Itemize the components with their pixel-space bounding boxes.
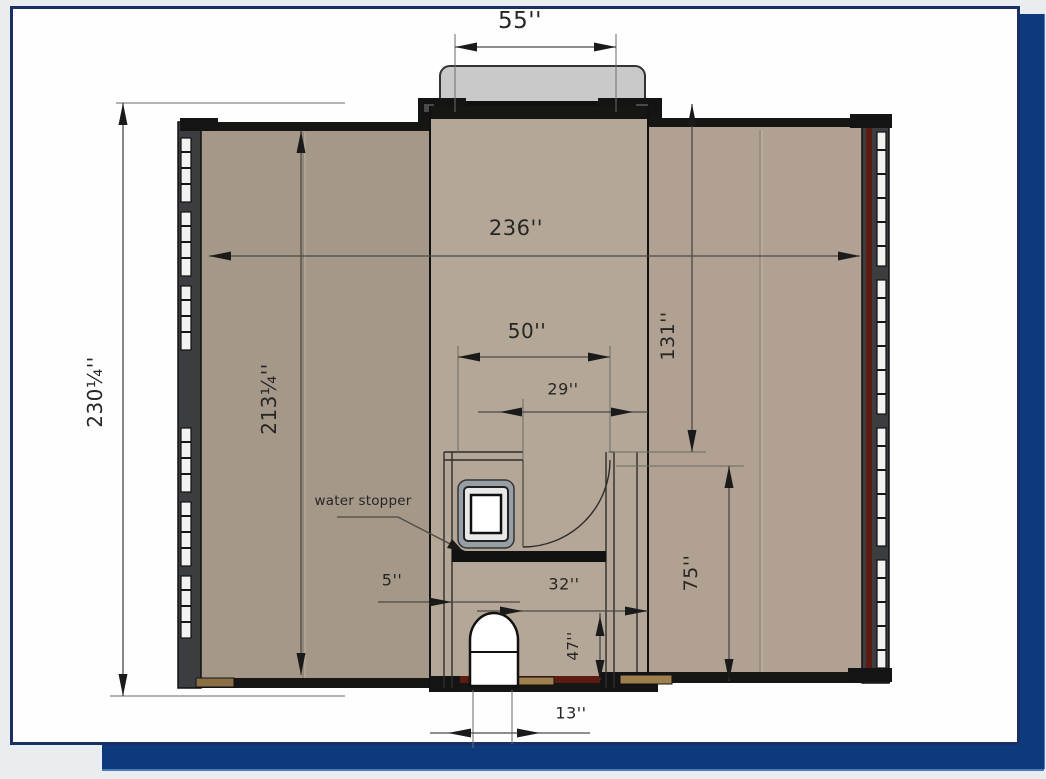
shower-unit [458, 480, 514, 548]
left-window [181, 212, 191, 276]
center-module [430, 106, 672, 692]
right-wall-stripe [866, 124, 872, 677]
right-window [877, 560, 886, 668]
right-wing [648, 114, 892, 683]
floor-plan-svg [0, 0, 1046, 779]
left-window [181, 502, 191, 566]
left-window [181, 138, 191, 202]
left-window [181, 286, 191, 350]
entry-arch-door [470, 613, 518, 686]
left-window [181, 428, 191, 492]
